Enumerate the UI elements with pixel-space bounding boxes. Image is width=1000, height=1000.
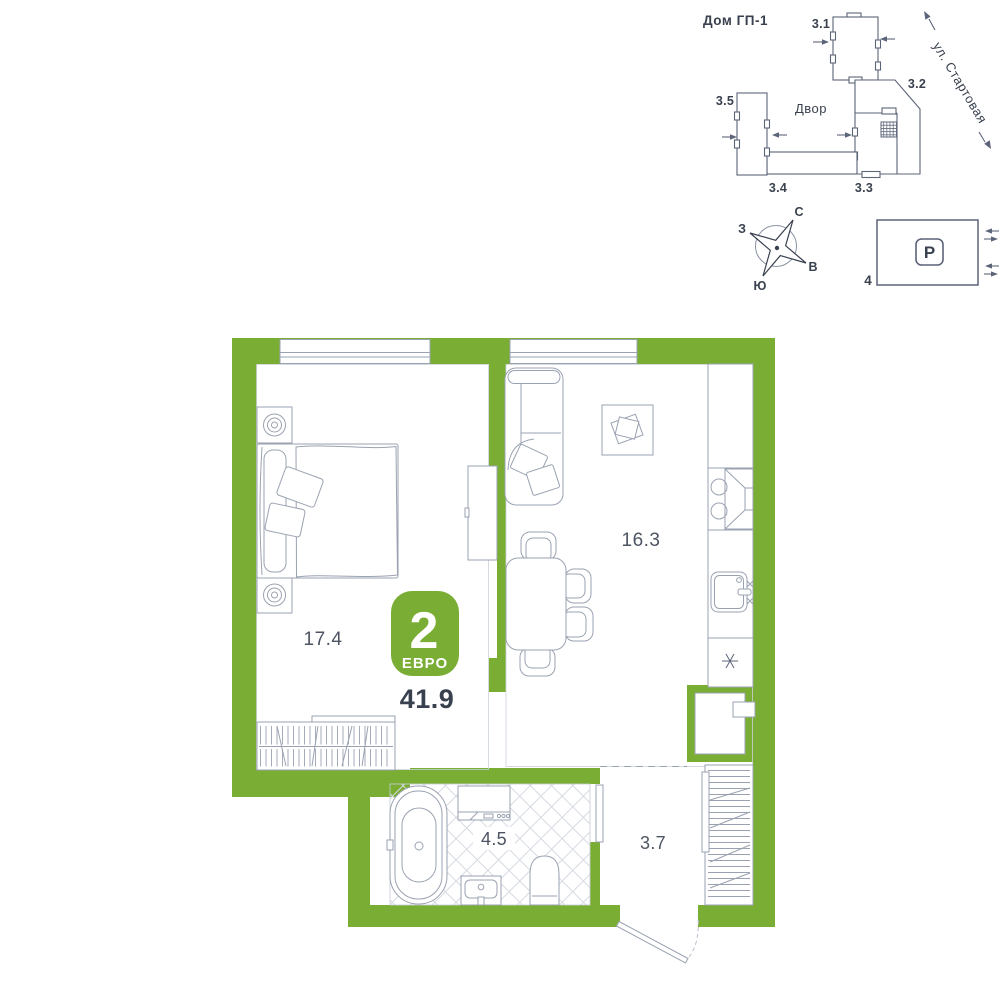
nightstand-icon <box>257 407 292 443</box>
building-notch <box>831 55 836 63</box>
nightstand-icon <box>257 577 292 613</box>
building-3-5-label: 3.5 <box>716 94 734 108</box>
floorplan-page: Дом ГП-1 <box>0 0 1000 1000</box>
building-notch <box>876 40 881 48</box>
total-area-label: 41.9 <box>400 684 455 714</box>
building-notch <box>765 120 770 128</box>
site-plan-title: Дом ГП-1 <box>703 13 768 28</box>
badge-room-count: 2 <box>410 602 439 660</box>
building-3-1-label: 3.1 <box>812 17 830 31</box>
building-notch <box>765 148 770 156</box>
washing-machine-icon <box>458 786 510 820</box>
window <box>280 340 430 364</box>
bathroom-door-icon <box>596 785 603 842</box>
building-notch <box>862 172 880 178</box>
bathroom-area-label: 4.5 <box>481 829 507 849</box>
compass-south-label: Ю <box>754 279 767 293</box>
parking-sign-letter: P <box>924 243 935 262</box>
building-notch <box>876 62 881 70</box>
parking-icon: P 4 <box>864 220 999 288</box>
kitchen-counter-icon <box>708 364 753 687</box>
entrance-door-icon <box>617 916 699 963</box>
building-3-4-label: 3.4 <box>769 181 787 195</box>
compass-north-label: С <box>794 205 803 219</box>
building-3-3-label: 3.3 <box>855 181 873 195</box>
building-notch <box>882 108 896 114</box>
hall-wardrobe-icon <box>702 765 753 905</box>
tv-stand-icon <box>465 466 497 560</box>
building-3-2-label: 3.2 <box>908 77 926 91</box>
apartment-type-badge: 2 ЕВРО <box>391 591 459 676</box>
hallway-area-label: 3.7 <box>640 833 666 853</box>
building-notch <box>735 140 740 148</box>
sofa-icon <box>505 368 563 505</box>
bedroom-area-label: 17.4 <box>304 629 343 650</box>
kitchen-living-area-label: 16.3 <box>622 530 661 551</box>
compass-west-label: З <box>738 222 746 236</box>
compass-icon: С З В Ю <box>738 205 817 293</box>
building-notch <box>853 128 858 136</box>
compass-east-label: В <box>808 260 817 274</box>
floor-plan: 17.4 16.3 4.5 3.7 2 ЕВРО 41.9 <box>232 338 775 963</box>
bed-icon <box>257 444 398 578</box>
compass-center-dot <box>775 246 779 250</box>
site-plan: Дом ГП-1 <box>703 11 991 195</box>
building-3-1 <box>833 17 878 80</box>
bathtub-icon <box>387 786 447 904</box>
window <box>510 340 637 364</box>
dining-set-icon <box>506 532 593 676</box>
tech-hatch-area <box>881 122 897 137</box>
building-notch <box>735 112 740 120</box>
courtyard-label: Двор <box>795 101 827 116</box>
parking-lot-number: 4 <box>864 273 872 288</box>
side-table-icon <box>602 405 653 455</box>
badge-layout-type: ЕВРО <box>402 655 448 672</box>
dining-table-icon <box>506 558 566 650</box>
chair-icon <box>562 607 593 641</box>
parking-arrows-icon <box>984 228 999 276</box>
bathroom-sink-icon <box>461 876 501 905</box>
wardrobe-icon <box>257 716 395 770</box>
street-name-label: ул. Стартовая <box>930 39 990 126</box>
building-notch <box>831 32 836 40</box>
building-3-4 <box>767 152 857 174</box>
building-3-5 <box>737 93 767 175</box>
toilet-icon <box>530 856 559 905</box>
